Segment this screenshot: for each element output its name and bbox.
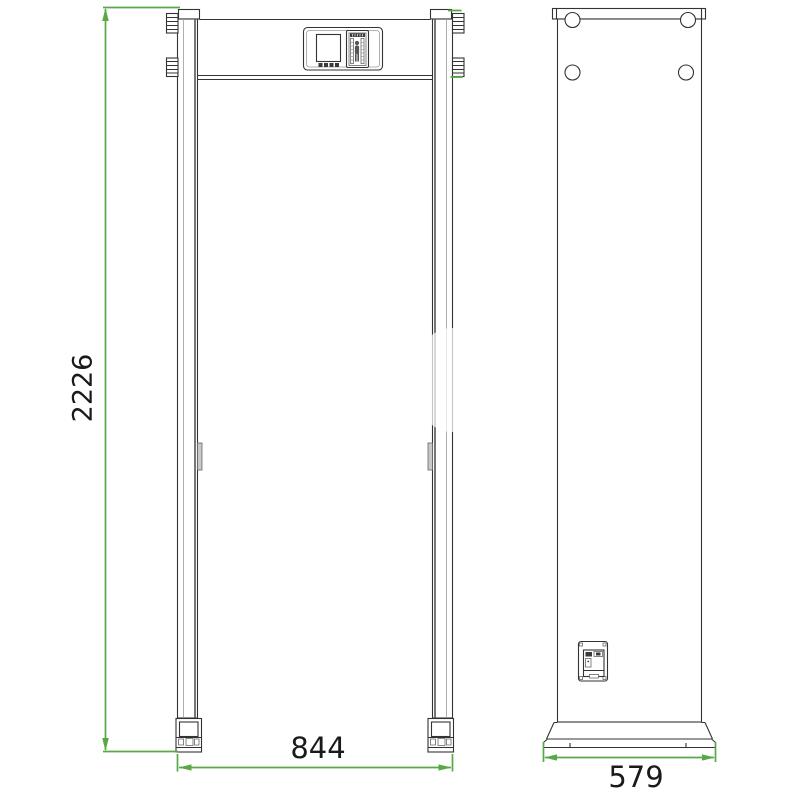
- panel-button: [324, 63, 328, 67]
- watermark: [420, 328, 486, 432]
- foot-inner-panel: [180, 722, 199, 737]
- dimension-width: 844: [178, 731, 453, 772]
- power-inlet-module: [579, 642, 608, 682]
- left-pillar-top-cap: [179, 10, 200, 20]
- hinge-block: [167, 58, 179, 77]
- person-icon: [355, 41, 359, 45]
- power-switch: [586, 652, 593, 657]
- front-view: [167, 10, 487, 753]
- screw: [603, 643, 606, 646]
- right-hinge-bottom: [453, 58, 465, 77]
- socket-detail: [586, 659, 592, 668]
- arrowhead-up: [102, 8, 109, 21]
- left-foot: [176, 719, 202, 753]
- bolt-hole-icon: [565, 65, 580, 80]
- skirt-flare: [547, 723, 713, 740]
- base-plate: [544, 739, 716, 748]
- arrowhead-right: [439, 764, 452, 770]
- hinge-block: [453, 14, 465, 34]
- dimension-depth-label: 579: [608, 760, 663, 794]
- dimension-height-label: 2226: [68, 354, 99, 423]
- foot-leveler-details: [179, 739, 200, 746]
- arrowhead-left: [544, 754, 557, 760]
- person-icon-body: [355, 46, 359, 55]
- foot-inner-panel: [432, 722, 451, 737]
- hinge-block: [453, 58, 465, 77]
- left-hinge-top: [167, 14, 179, 34]
- screw: [580, 643, 583, 646]
- bolt-hole-icon: [679, 65, 694, 80]
- drawing-svg: 2226 844 579: [0, 0, 800, 800]
- cable-outlet: [590, 675, 599, 679]
- right-foot: [428, 719, 454, 753]
- panel-button: [335, 63, 339, 67]
- panel-button: [319, 63, 323, 67]
- panel-button: [330, 63, 334, 67]
- bolt-hole-icon: [681, 13, 696, 28]
- zone-indicator: [347, 31, 369, 68]
- dimension-depth: 579: [544, 742, 716, 794]
- arrowhead-left: [179, 764, 192, 770]
- technical-drawing-page: 2226 844 579: [0, 0, 800, 800]
- side-panel-body: [558, 19, 702, 722]
- base-skirt: [544, 723, 716, 748]
- right-hinge-top: [453, 14, 465, 34]
- bolt-hole-icon: [565, 13, 580, 28]
- control-panel-housing: [304, 28, 383, 71]
- screw: [580, 677, 583, 680]
- lcd-display: [317, 35, 341, 62]
- left-pillar: [167, 10, 203, 753]
- arrowhead-down: [102, 738, 109, 751]
- dimension-width-label: 844: [290, 731, 345, 765]
- ir-sensor-right: [428, 443, 433, 470]
- ir-sensor-left: [198, 443, 203, 470]
- dimension-height: 2226: [68, 8, 181, 752]
- socket-pin: [587, 661, 589, 663]
- foot-leveler-details: [431, 739, 452, 746]
- hinge-block: [167, 14, 179, 34]
- arrowhead-right: [702, 754, 715, 760]
- fuse-slit: [596, 653, 601, 656]
- side-view: [544, 9, 716, 748]
- left-hinge-bottom: [167, 58, 179, 77]
- control-panel: [304, 28, 383, 71]
